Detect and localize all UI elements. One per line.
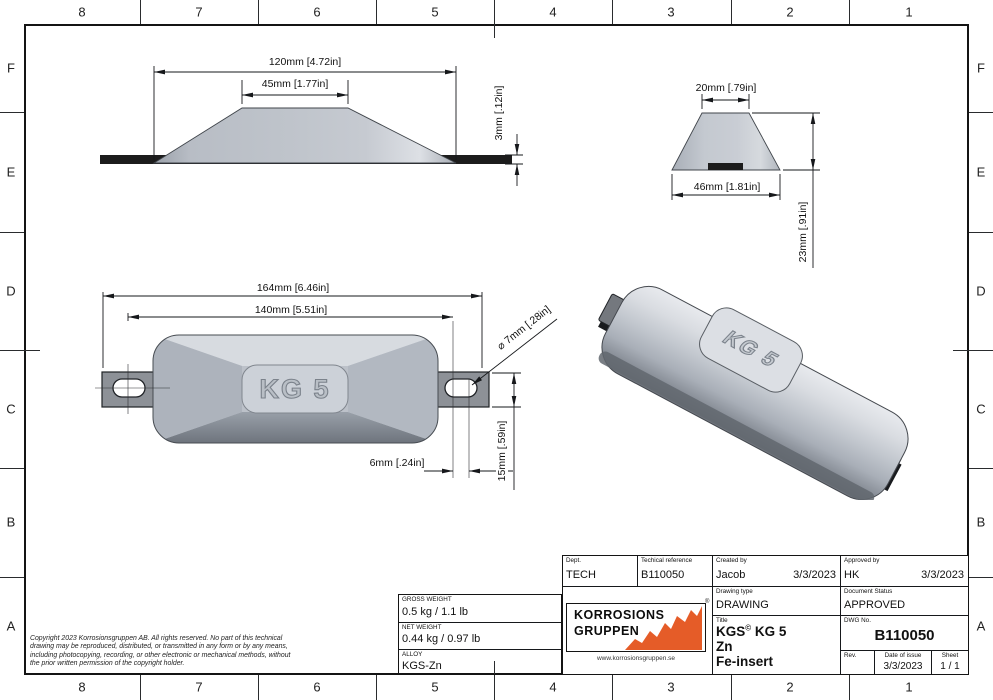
zone-tick (612, 675, 613, 700)
title-block-line (637, 556, 638, 586)
zone-col-label: 7 (195, 5, 202, 20)
zone-row-label: F (977, 61, 985, 76)
dim-side-height: 23mm [.91in] (797, 200, 809, 265)
zone-tick (258, 0, 259, 24)
zone-tick-center (494, 0, 495, 38)
created-by-label: Created by (716, 557, 747, 564)
zone-col-label: 2 (786, 680, 793, 695)
dim-top-overall: 164mm [6.46in] (255, 282, 331, 294)
drawing-type-value: DRAWING (716, 599, 769, 611)
drawing-sheet: 8 7 6 5 4 3 2 1 8 7 6 5 4 3 2 1 F E D C … (0, 0, 993, 700)
drawing-title-line1: KGS© KG 5 (716, 624, 786, 639)
dim-top-tab: 15mm [.59in] (496, 419, 508, 484)
net-weight-value: 0.44 kg / 0.97 lb (402, 633, 480, 645)
gross-weight-value: 0.5 kg / 1.1 lb (402, 606, 468, 618)
zone-col-label: 5 (431, 680, 438, 695)
zone-row-label: B (7, 515, 16, 530)
zone-col-label: 2 (786, 5, 793, 20)
zone-tick (731, 675, 732, 700)
alloy-label: ALLOY (402, 651, 422, 658)
zone-tick (969, 232, 993, 233)
dim-top-slot: 6mm [.24in] (368, 457, 427, 469)
copyright-notice: Copyright 2023 Korrosionsgruppen AB. All… (30, 635, 380, 668)
approved-date: 3/3/2023 (912, 569, 964, 581)
iso-body (591, 285, 918, 500)
zone-tick (969, 577, 993, 578)
dim-front-top: 45mm [1.77in] (260, 78, 331, 90)
zone-row-label: E (7, 165, 16, 180)
title-model: KG 5 (751, 624, 786, 639)
side-view (640, 80, 840, 280)
logo-mountain-icon (567, 604, 704, 650)
zone-row-label: D (6, 284, 15, 299)
zone-tick-center (0, 350, 40, 351)
dwg-no-label: DWG No. (844, 617, 871, 624)
dim-side-top: 20mm [.79in] (694, 82, 759, 94)
alloy-value: KGS-Zn (402, 660, 442, 672)
rev-label: Rev. (844, 652, 856, 659)
techref-value: B110050 (641, 569, 684, 581)
zone-col-label: 8 (78, 680, 85, 695)
date-of-issue-value: 3/3/2023 (875, 661, 931, 672)
sheet-value: 1 / 1 (932, 661, 968, 672)
slot-hole-right (445, 379, 477, 397)
zone-tick (140, 675, 141, 700)
dim-side-base: 46mm [1.81in] (692, 181, 763, 193)
zone-row-label: C (6, 402, 15, 417)
dept-value: TECH (566, 569, 596, 581)
net-weight-label: NET WEIGHT (402, 624, 441, 631)
company-logo: KORROSIONS GRUPPEN (566, 603, 706, 652)
zone-col-label: 1 (905, 680, 912, 695)
zone-tick (0, 112, 24, 113)
logo-website: www.korrosionsgruppen.se (566, 655, 706, 662)
zone-tick (849, 0, 850, 24)
logo-registered-mark: ® (705, 599, 709, 605)
title-brand: KGS (716, 624, 745, 639)
title-block-line (712, 615, 968, 616)
dim-top-holespacing: 140mm [5.51in] (253, 304, 329, 316)
zone-tick (258, 675, 259, 700)
anode-side-profile (672, 113, 780, 170)
isometric-view (580, 285, 980, 500)
zone-tick (849, 675, 850, 700)
drawing-title-line3: Fe-insert (716, 654, 773, 669)
zone-tick (969, 112, 993, 113)
zone-col-label: 5 (431, 5, 438, 20)
fe-insert-section (708, 163, 743, 170)
product-label-top-view: KG 5 (242, 365, 348, 413)
zone-tick (376, 0, 377, 24)
document-status-label: Document Status (844, 588, 892, 595)
dwg-no-value: B110050 (841, 627, 968, 644)
zone-tick (0, 468, 24, 469)
zone-row-label: A (977, 619, 986, 634)
zone-tick (612, 0, 613, 24)
zone-col-label: 6 (313, 680, 320, 695)
created-by-value: Jacob (716, 569, 745, 581)
title-block-line (563, 586, 968, 587)
approved-by-value: HK (844, 569, 859, 581)
zone-tick (140, 0, 141, 24)
drawing-title-line2: Zn (716, 639, 733, 654)
zone-col-label: 7 (195, 680, 202, 695)
zone-tick (376, 675, 377, 700)
zone-col-label: 4 (549, 5, 556, 20)
zone-col-label: 1 (905, 5, 912, 20)
zone-col-label: 8 (78, 5, 85, 20)
zone-col-label: 3 (667, 5, 674, 20)
gross-weight-label: GROSS WEIGHT (402, 596, 452, 603)
title-label: Title (716, 617, 728, 624)
document-status-value: APPROVED (844, 599, 905, 611)
zone-tick (0, 577, 24, 578)
zone-row-label: A (7, 619, 16, 634)
front-view (80, 50, 540, 200)
zone-col-label: 3 (667, 680, 674, 695)
zone-row-label: F (7, 61, 15, 76)
sheet-label: Sheet (932, 652, 968, 659)
techref-label: Techical reference (641, 557, 692, 564)
zone-tick (731, 0, 732, 24)
dim-front-width: 120mm [4.72in] (267, 56, 343, 68)
zone-row-label: E (977, 165, 986, 180)
date-of-issue-label: Date of issue (875, 652, 931, 659)
weights-divider (399, 622, 561, 623)
dim-front-thickness: 3mm [.12in] (493, 84, 505, 143)
zone-tick (0, 232, 24, 233)
title-block-line (840, 650, 968, 651)
anode-front-profile (154, 108, 456, 163)
zone-col-label: 6 (313, 5, 320, 20)
drawing-type-label: Drawing type (716, 588, 753, 595)
weights-divider (399, 649, 561, 650)
created-date: 3/3/2023 (788, 569, 836, 581)
approved-by-label: Approved by (844, 557, 879, 564)
dept-label: Dept. (566, 557, 581, 564)
zone-row-label: B (977, 515, 986, 530)
zone-col-label: 4 (549, 680, 556, 695)
